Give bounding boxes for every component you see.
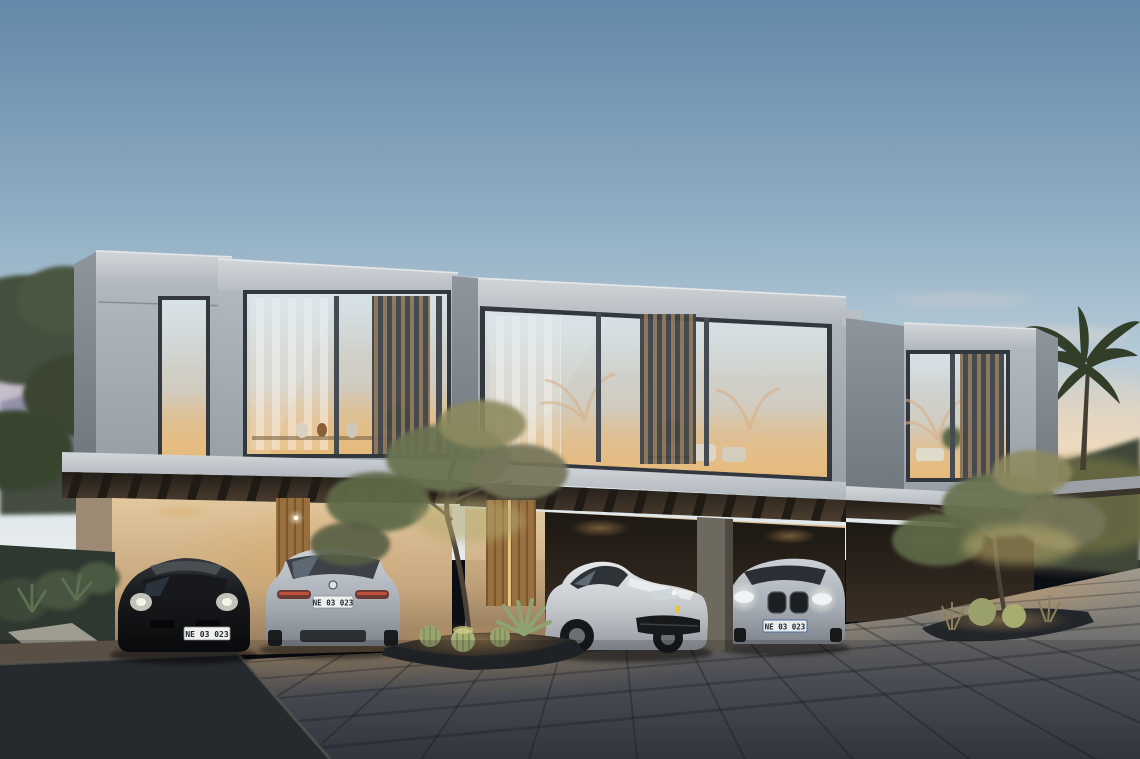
unit-1-side-face: [74, 252, 96, 472]
plate-text: NE 03 023: [185, 630, 229, 639]
license-plate-front-silver-car: NE 03 023: [763, 620, 807, 632]
cloud-streak: [890, 294, 1030, 306]
unit-3-louvers: [960, 354, 1004, 478]
kidney-grille: [790, 592, 808, 613]
architectural-render: NE 03 023 NE 03 023: [0, 0, 1140, 759]
plate-text: NE 03 023: [313, 599, 354, 608]
headlight: [812, 593, 832, 605]
plate-text: NE 03 023: [765, 623, 806, 632]
unit-3-window: [904, 350, 1010, 482]
unit-3-side-face: [846, 318, 904, 500]
license-plate-front-black-car: NE 03 023: [184, 627, 230, 640]
prancing-badge: [676, 606, 680, 613]
kidney-grille: [768, 592, 786, 613]
roundel-badge: [329, 581, 337, 589]
headlight: [734, 591, 754, 603]
license-plate-rear-silver-car: NE 03 023: [313, 596, 354, 608]
unit-1-wing-window: [158, 296, 210, 462]
unit-2-louvers: [640, 314, 696, 464]
